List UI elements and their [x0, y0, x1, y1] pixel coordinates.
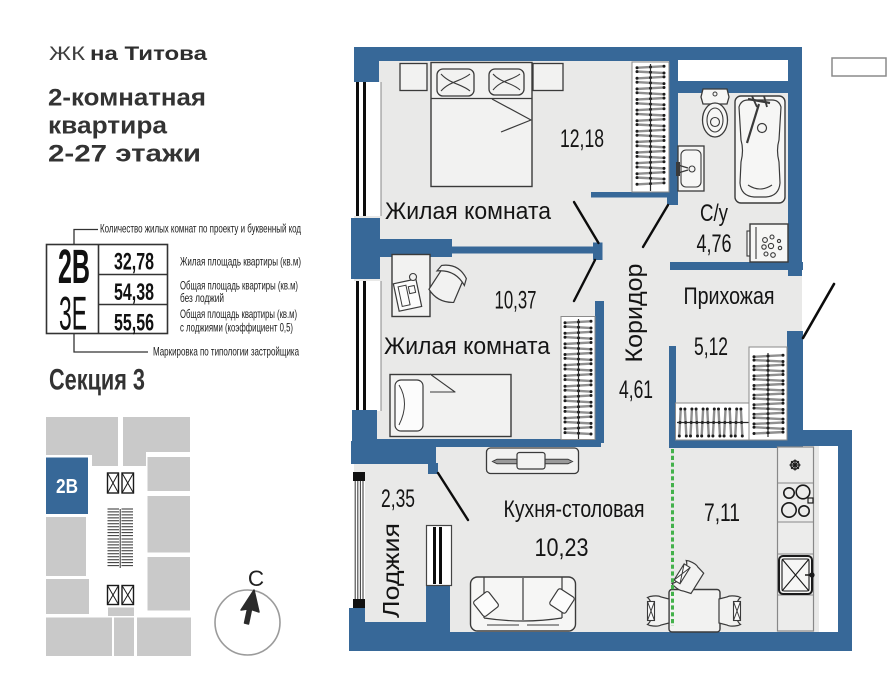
svg-text:квартира: квартира [48, 113, 168, 140]
svg-text:Жилая комната: Жилая комната [384, 333, 551, 360]
svg-text:Лоджия: Лоджия [378, 523, 404, 618]
svg-text:Жилая площадь квартиры (кв.м): Жилая площадь квартиры (кв.м) [180, 255, 301, 269]
svg-text:2В: 2В [56, 476, 78, 498]
svg-text:55,56: 55,56 [114, 310, 154, 337]
svg-text:на Титова: на Титова [90, 43, 207, 65]
svg-text:ЖК: ЖК [49, 43, 86, 65]
svg-text:Жилая комната: Жилая комната [385, 198, 552, 225]
svg-text:10,23: 10,23 [535, 534, 589, 562]
svg-text:3Е: 3Е [59, 287, 87, 340]
svg-text:Коридор: Коридор [621, 264, 648, 363]
svg-text:Секция 3: Секция 3 [49, 364, 145, 397]
svg-text:5,12: 5,12 [694, 333, 728, 361]
svg-text:2,35: 2,35 [381, 485, 415, 513]
svg-text:Общая площадь квартиры (кв.м): Общая площадь квартиры (кв.м) [180, 307, 297, 321]
svg-text:С: С [248, 566, 264, 591]
svg-text:с лоджиями (коэффициент 0,5): с лоджиями (коэффициент 0,5) [180, 321, 293, 335]
svg-text:7,11: 7,11 [704, 499, 740, 527]
svg-text:32,78: 32,78 [114, 249, 154, 276]
svg-text:2-комнатная: 2-комнатная [48, 85, 206, 112]
svg-text:10,37: 10,37 [495, 287, 537, 315]
svg-text:12,18: 12,18 [560, 125, 604, 153]
svg-text:Количество жилых комнат по про: Количество жилых комнат по проекту и бук… [100, 222, 301, 236]
svg-text:4,61: 4,61 [619, 376, 653, 404]
svg-text:4,76: 4,76 [697, 230, 732, 258]
svg-text:Маркировка по типологии застро: Маркировка по типологии застройщика [153, 345, 299, 359]
svg-text:54,38: 54,38 [114, 279, 154, 306]
svg-text:без лоджий: без лоджий [180, 291, 224, 305]
svg-text:Прихожая: Прихожая [684, 283, 775, 310]
svg-text:2-27 этажи: 2-27 этажи [48, 141, 201, 168]
svg-text:Кухня-столовая: Кухня-столовая [504, 496, 645, 523]
svg-text:С/у: С/у [700, 200, 728, 227]
